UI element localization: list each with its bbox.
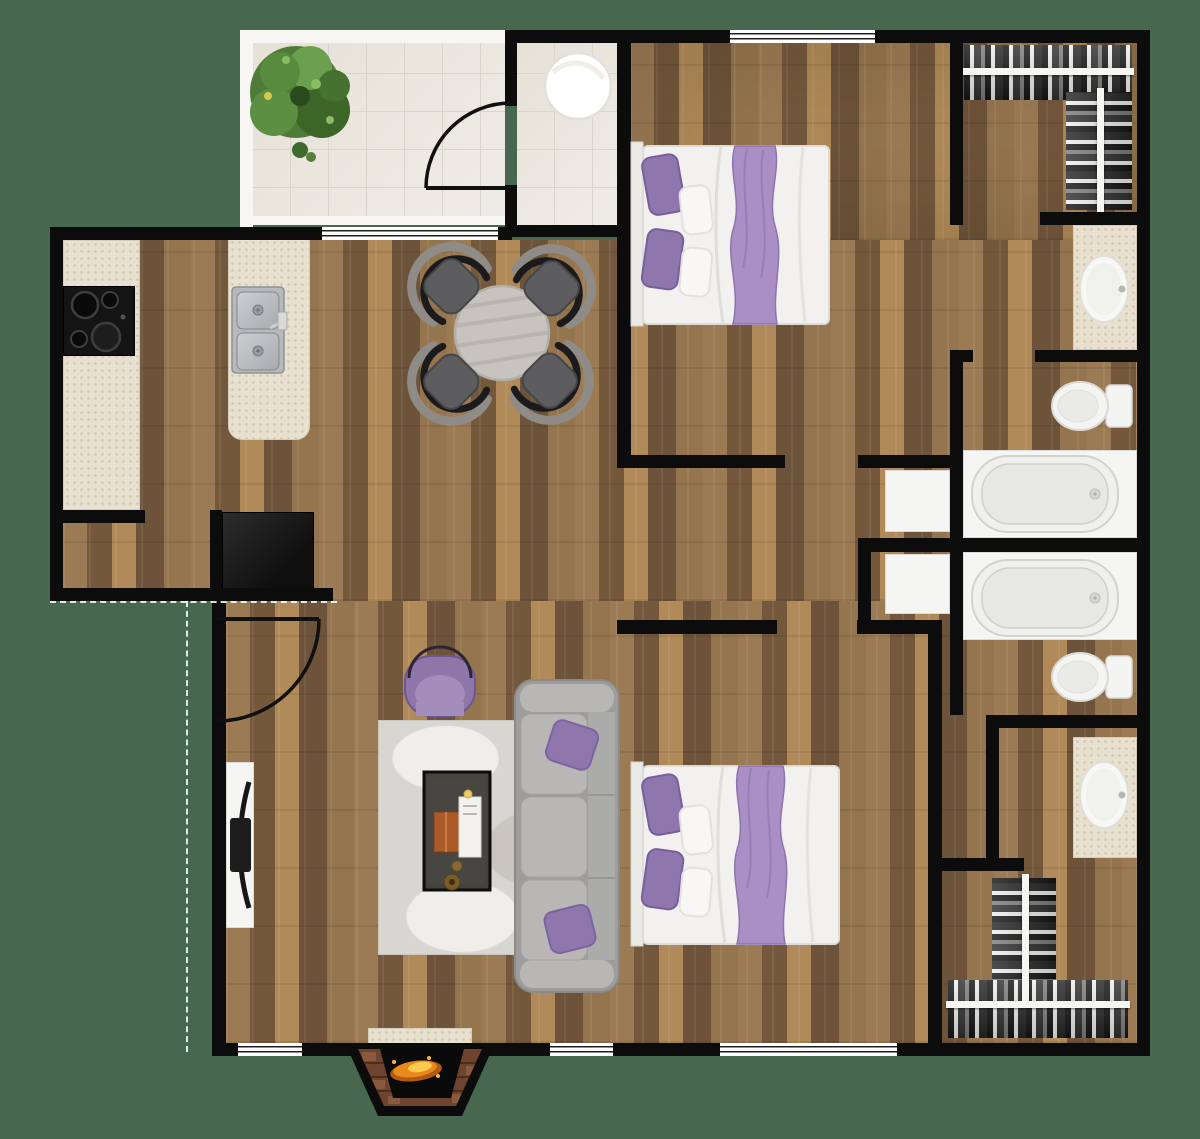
potted-plant — [250, 46, 350, 162]
bed-1 — [631, 142, 829, 326]
vanity-sink-2 — [1080, 762, 1128, 828]
bathtub-1 — [972, 456, 1118, 532]
round-fixture — [545, 53, 611, 119]
bathtub-2 — [972, 560, 1118, 636]
cooktop-burners — [71, 292, 126, 351]
furniture-layer — [0, 0, 1200, 1139]
coffee-table — [424, 772, 490, 890]
floor-plan-canvas — [0, 0, 1200, 1139]
tv-screen — [230, 782, 251, 908]
armchair — [405, 647, 475, 716]
fireplace — [345, 1043, 495, 1116]
toilet-1 — [1052, 382, 1132, 430]
toilet-2 — [1052, 653, 1132, 701]
door-balcony-utility — [426, 103, 511, 188]
vanity-sink-1 — [1080, 256, 1128, 322]
bed-2 — [631, 762, 839, 946]
kitchen-sink — [232, 287, 287, 373]
door-living-room — [217, 619, 319, 721]
sofa — [515, 680, 619, 992]
